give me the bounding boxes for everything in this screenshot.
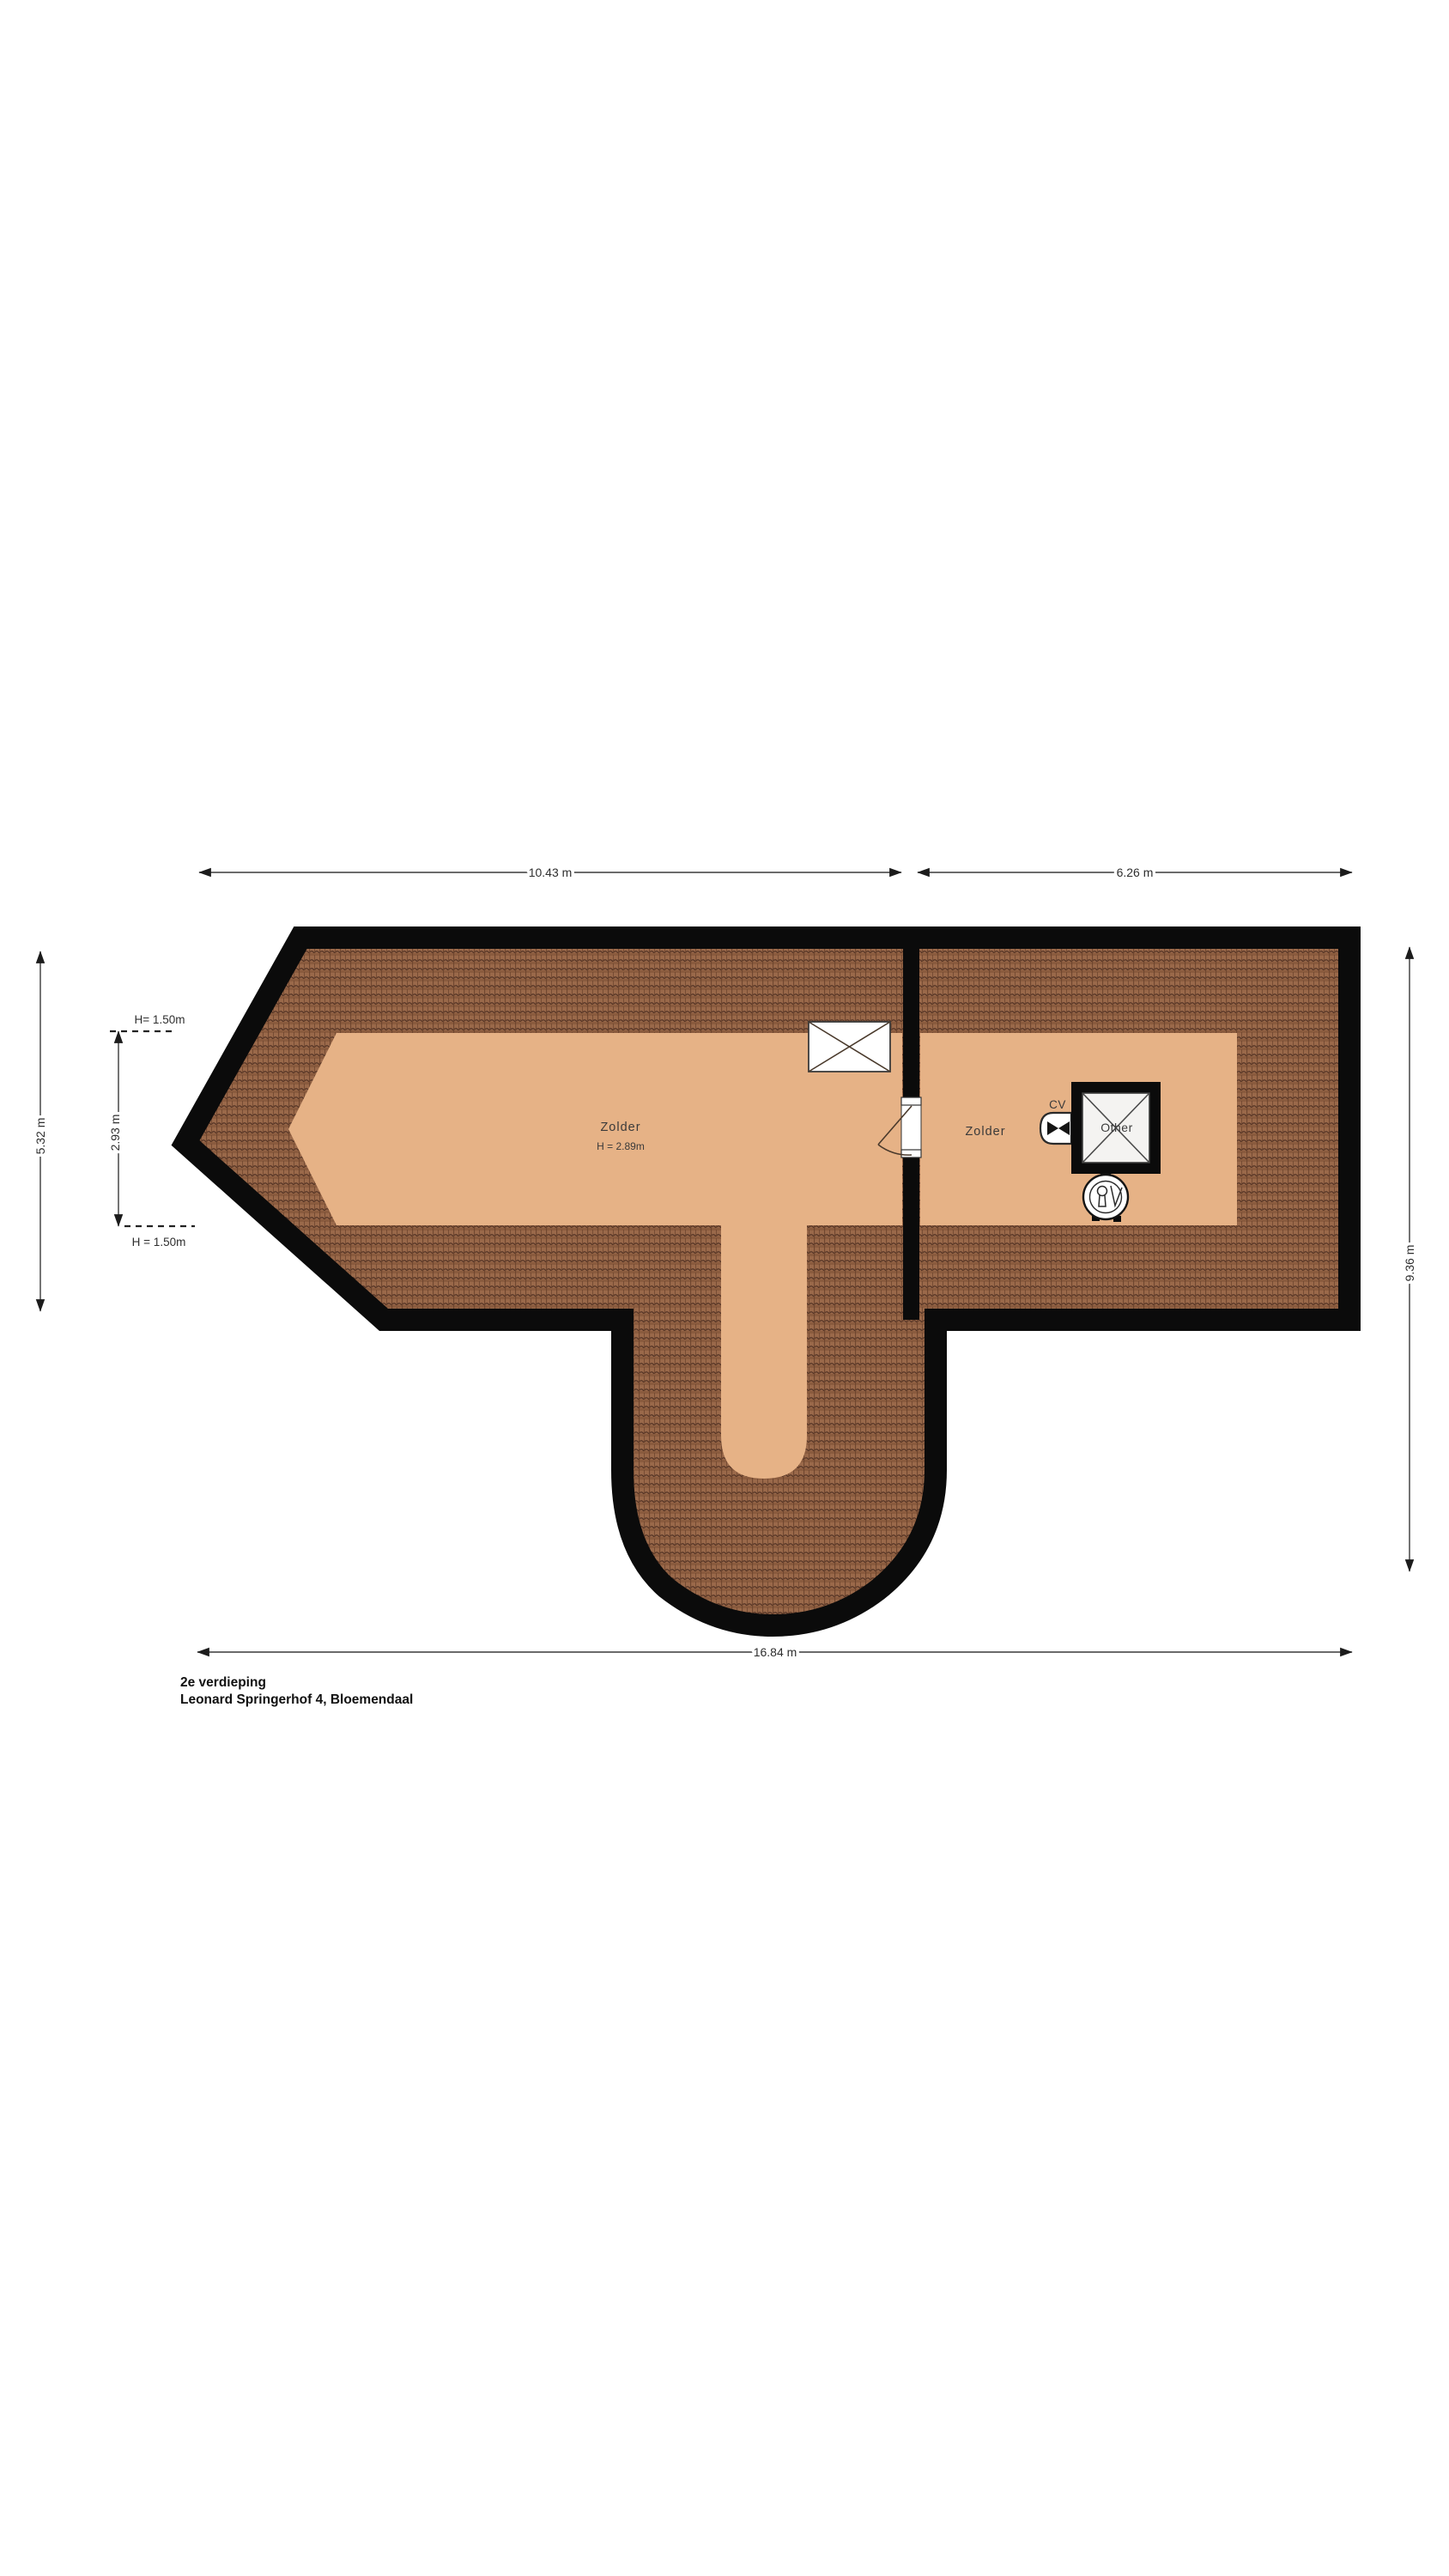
title-block: 2e verdieping Leonard Springerhof 4, Blo… xyxy=(180,1675,413,1707)
knee-wall-top-label: H= 1.50m xyxy=(135,1013,185,1026)
dim-label-left-inner: 2.93 m xyxy=(108,1115,122,1151)
address-title: Leonard Springerhof 4, Bloemendaal xyxy=(180,1692,413,1707)
dim-label-top-right: 6.26 m xyxy=(1117,866,1154,879)
dim-label-bottom: 16.84 m xyxy=(754,1645,797,1659)
knee-wall-bottom-label: H = 1.50m xyxy=(132,1236,186,1249)
roof-window xyxy=(809,1022,890,1072)
building xyxy=(185,938,1349,1625)
dim-label-left-outer: 5.32 m xyxy=(33,1118,47,1155)
cv-unit xyxy=(1040,1113,1071,1144)
zolder-right-label: Zolder xyxy=(965,1125,1005,1139)
floor-title: 2e verdieping xyxy=(180,1675,266,1690)
floorplan-page: 10.43 m 6.26 m 16.84 m 9.36 m 5.32 m H= … xyxy=(0,0,1449,2576)
shaft-other-label: Other xyxy=(1100,1121,1133,1134)
floorplan-canvas: 10.43 m 6.26 m 16.84 m 9.36 m 5.32 m H= … xyxy=(0,0,1449,2576)
cv-label: CV xyxy=(1049,1098,1066,1111)
dim-label-top-left: 10.43 m xyxy=(529,866,573,879)
zolder-left-height-label: H = 2.89m xyxy=(597,1140,645,1152)
zolder-left-label: Zolder xyxy=(600,1121,640,1134)
dim-label-right: 9.36 m xyxy=(1403,1245,1416,1282)
